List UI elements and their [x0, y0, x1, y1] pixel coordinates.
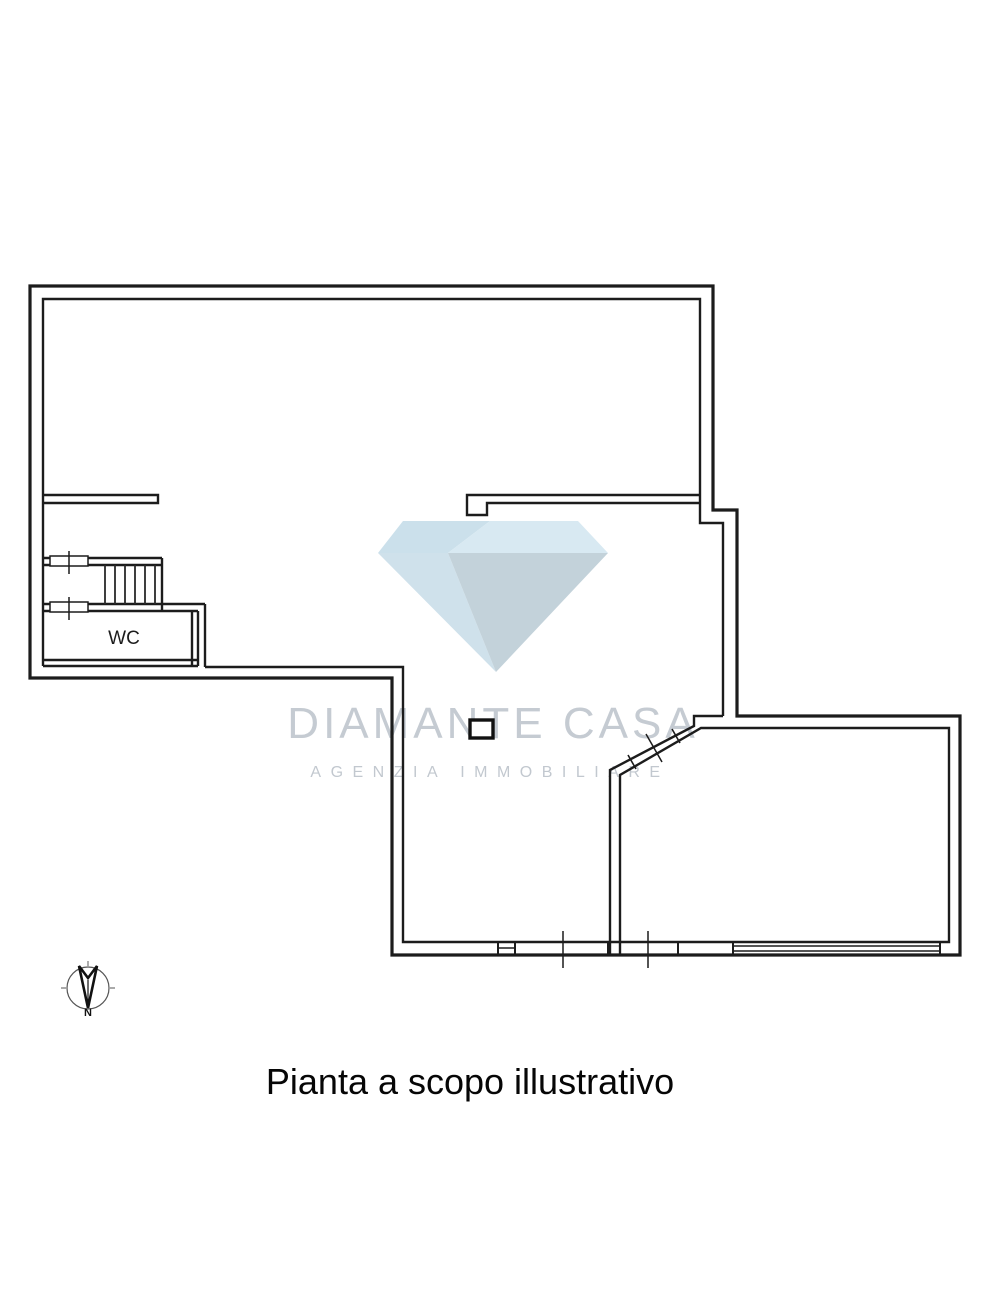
window-sills	[498, 729, 940, 956]
diamond-logo-icon	[378, 521, 608, 672]
north-label: N	[76, 1007, 100, 1019]
wc-room-label: WC	[96, 628, 152, 650]
floor-plan-drawing	[0, 0, 984, 1312]
north-compass-icon	[61, 961, 115, 1009]
column	[470, 720, 493, 738]
floor-plan-page: DIAMANTE CASA AGENZIA IMMOBILIARE	[0, 0, 984, 1312]
plan-caption: Pianta a scopo illustrativo	[230, 1061, 710, 1103]
stairs	[105, 565, 155, 604]
door-ticks	[69, 551, 662, 968]
